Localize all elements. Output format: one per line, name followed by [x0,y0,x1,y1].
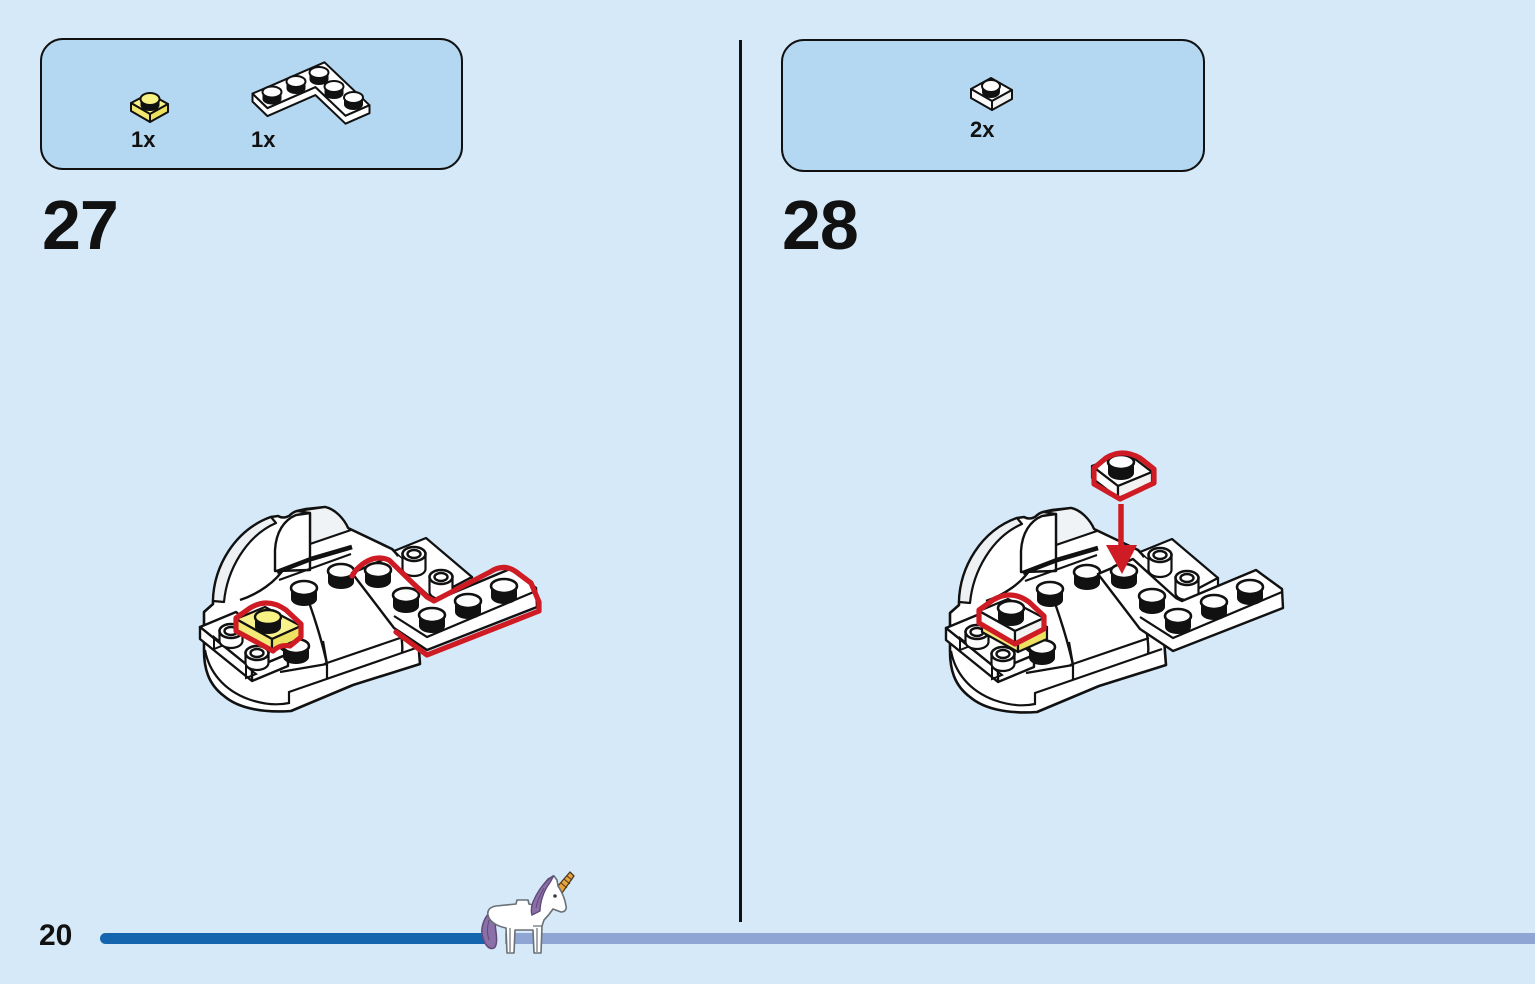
svg-text:1x: 1x [251,127,276,152]
svg-text:1x: 1x [131,127,156,152]
svg-text:2x: 2x [970,117,995,142]
